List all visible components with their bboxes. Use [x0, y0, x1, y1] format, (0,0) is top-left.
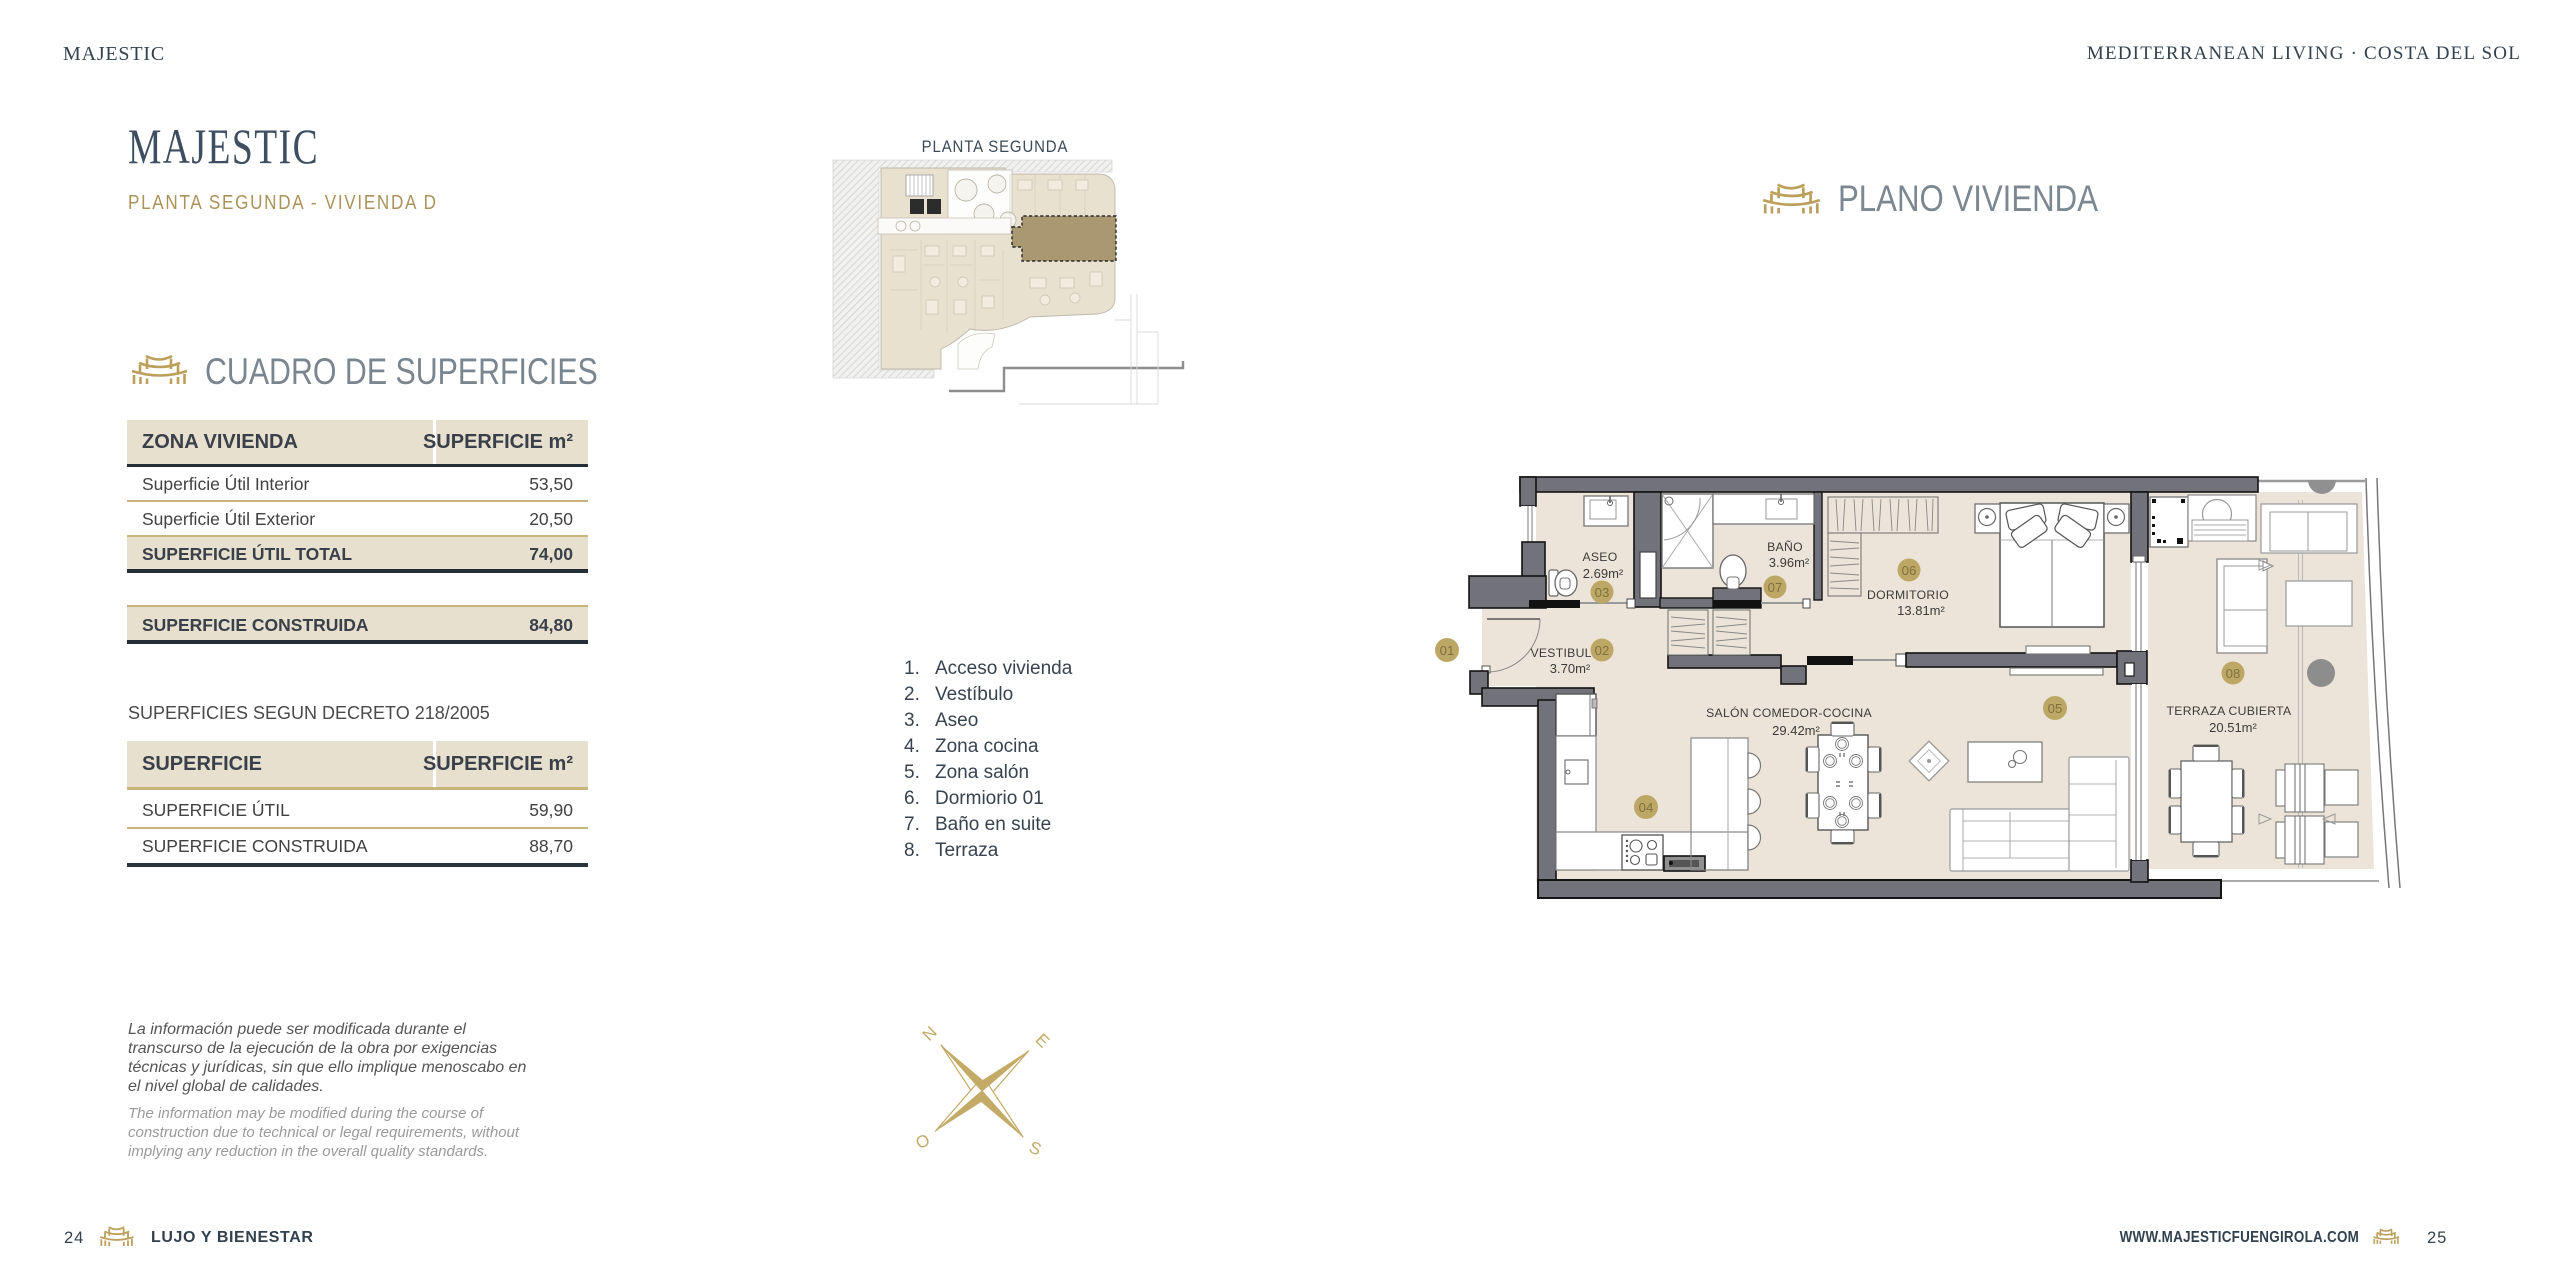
- svg-text:02: 02: [1595, 643, 1610, 658]
- svg-text:13.81m²: 13.81m²: [1897, 603, 1945, 618]
- svg-text:BAÑO: BAÑO: [1767, 540, 1803, 554]
- svg-text:08: 08: [2226, 666, 2241, 681]
- svg-text:2.69m²: 2.69m²: [1583, 566, 1624, 581]
- svg-text:SALÓN COMEDOR-COCINA: SALÓN COMEDOR-COCINA: [1706, 705, 1872, 720]
- svg-text:01: 01: [1440, 643, 1455, 658]
- svg-text:29.42m²: 29.42m²: [1772, 723, 1820, 738]
- svg-text:3.96m²: 3.96m²: [1769, 555, 1810, 570]
- svg-text:03: 03: [1595, 585, 1610, 600]
- svg-text:3.70m²: 3.70m²: [1550, 661, 1591, 676]
- svg-text:DORMITORIO: DORMITORIO: [1867, 588, 1949, 602]
- svg-text:N: N: [919, 1023, 941, 1045]
- svg-text:O: O: [913, 1130, 933, 1153]
- svg-text:05: 05: [2048, 701, 2063, 716]
- svg-text:S: S: [1026, 1138, 1044, 1160]
- svg-text:TERRAZA CUBIERTA: TERRAZA CUBIERTA: [2167, 704, 2292, 718]
- svg-text:ASEO: ASEO: [1582, 550, 1617, 564]
- svg-text:E: E: [1032, 1030, 1053, 1052]
- svg-text:07: 07: [1768, 580, 1783, 595]
- svg-text:04: 04: [1639, 800, 1654, 815]
- svg-text:06: 06: [1902, 563, 1917, 578]
- svg-text:20.51m²: 20.51m²: [2209, 720, 2257, 735]
